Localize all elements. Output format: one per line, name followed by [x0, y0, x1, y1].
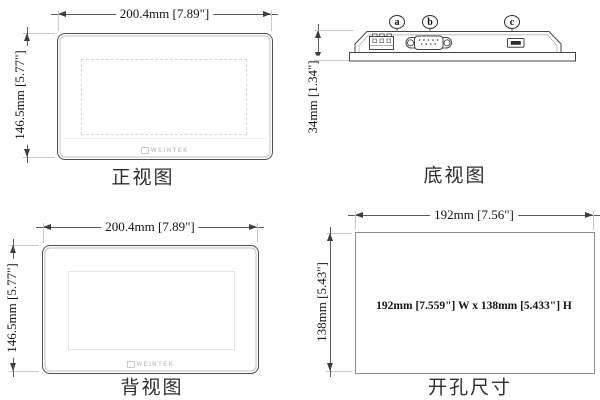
front-bezel-strip: [350, 53, 576, 62]
power-terminal-connector: [370, 34, 394, 50]
weintek-logo: WEINTEK: [126, 361, 174, 368]
extension-line: [257, 223, 258, 243]
usb-connector: [508, 39, 525, 48]
cutout-view-label: 开孔尺寸: [428, 373, 512, 400]
weintek-logo-icon: [126, 361, 134, 368]
dim-arrow-down-icon: [10, 363, 16, 371]
bottom-view-label: 底视图: [423, 161, 486, 188]
front-view-label: 正视图: [111, 163, 174, 190]
dim-arrow-right-icon: [263, 11, 271, 17]
back-view-panel: WEINTEK: [42, 245, 259, 374]
back-view-label: 背视图: [120, 373, 183, 400]
display-area-outline: [81, 59, 247, 135]
front-width-dimension-text: 200.4mm [7.89"]: [116, 6, 213, 22]
cutout-width-dimension-text: 192mm [7.56"]: [430, 207, 518, 223]
dimension-drawing-canvas: 200.4mm [7.89"] 146.5mm [5.77"] WEINTEK …: [0, 0, 600, 400]
extension-line: [593, 211, 594, 230]
bezel-seam-line: [64, 138, 266, 139]
extension-line: [58, 10, 59, 31]
weintek-logo-text: WEINTEK: [136, 362, 174, 368]
weintek-logo-text: WEINTEK: [151, 148, 189, 154]
device-bottom-profile-drawing: [340, 26, 590, 66]
dim-arrow-up-icon: [327, 233, 333, 241]
weintek-logo-icon: [141, 147, 149, 154]
extension-line: [314, 30, 353, 31]
cutout-size-note: 192mm [7.559"] W x 138mm [5.433"] H: [376, 300, 572, 312]
dim-arrow-down-icon: [327, 363, 333, 371]
dim-arrow-right-icon: [585, 212, 593, 218]
dim-arrow-down-icon: [24, 149, 30, 157]
dim-arrow-left-icon: [355, 212, 363, 218]
front-view-panel: WEINTEK: [57, 33, 273, 160]
extension-line: [314, 60, 349, 61]
extension-line: [355, 211, 356, 230]
dim-arrow-right-icon: [249, 224, 257, 230]
dim-arrow-up-icon: [10, 245, 16, 253]
dim-arrow-left-icon: [43, 224, 51, 230]
dim-arrow-up-icon: [24, 33, 30, 41]
dimension-line: [330, 227, 331, 377]
dim-arrow-left-icon: [58, 11, 66, 17]
back-width-dimension-text: 200.4mm [7.89"]: [101, 219, 198, 235]
dim-arrow-up-icon: [315, 30, 321, 38]
extension-line: [271, 10, 272, 31]
back-cover-outline: [68, 271, 235, 350]
weintek-logo: WEINTEK: [141, 147, 189, 154]
db9-serial-connector: [406, 36, 452, 50]
extension-line: [43, 223, 44, 243]
